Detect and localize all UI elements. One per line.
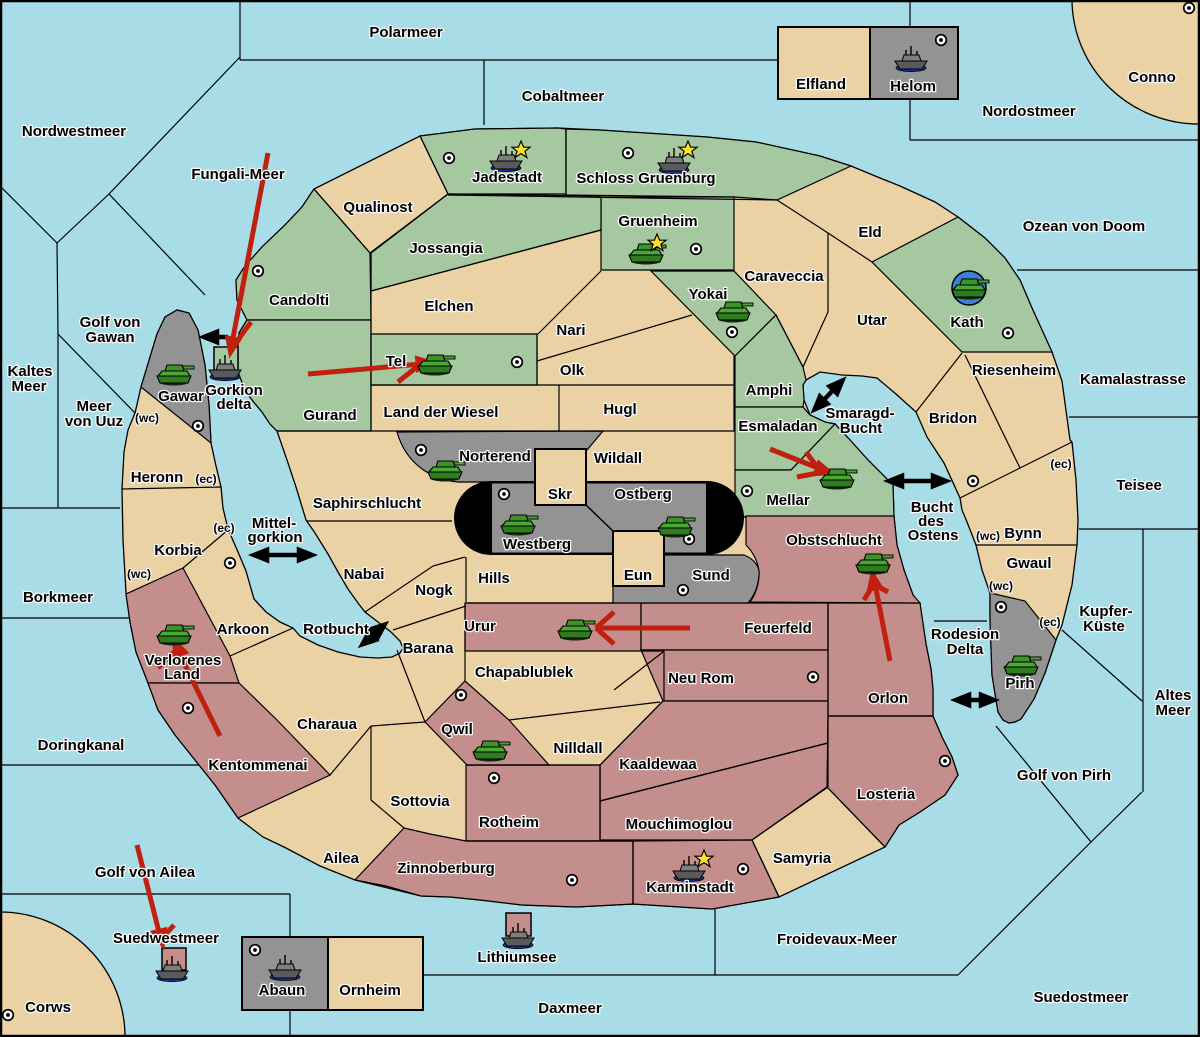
svg-text:Utar: Utar	[857, 312, 887, 329]
svg-text:Rotbucht: Rotbucht	[303, 621, 369, 638]
svg-text:Riesenheim: Riesenheim	[972, 362, 1056, 379]
svg-text:Ozean von Doom: Ozean von Doom	[1023, 218, 1146, 235]
svg-text:Abaun: Abaun	[259, 982, 306, 999]
svg-text:Elchen: Elchen	[424, 298, 473, 315]
svg-text:Sottovia: Sottovia	[390, 793, 450, 810]
svg-text:Qualinost: Qualinost	[343, 199, 412, 216]
svg-text:Rotheim: Rotheim	[479, 814, 539, 831]
svg-text:Fungali-Meer: Fungali-Meer	[191, 166, 285, 183]
svg-text:Nabai: Nabai	[344, 566, 385, 583]
svg-text:Kath: Kath	[950, 314, 983, 331]
svg-text:Delta: Delta	[947, 641, 984, 658]
svg-text:Kaaldewaa: Kaaldewaa	[619, 756, 697, 773]
svg-text:Charaua: Charaua	[297, 716, 358, 733]
svg-text:Ostens: Ostens	[908, 527, 959, 544]
svg-text:Skr: Skr	[548, 486, 572, 503]
svg-text:delta: delta	[216, 396, 252, 413]
svg-text:Mellar: Mellar	[766, 492, 810, 509]
svg-text:Chapablublek: Chapablublek	[475, 664, 574, 681]
svg-text:von Uuz: von Uuz	[65, 413, 123, 430]
svg-text:Tel: Tel	[386, 353, 407, 370]
svg-text:Qwil: Qwil	[441, 721, 473, 738]
svg-text:Lithiumsee: Lithiumsee	[477, 949, 556, 966]
svg-text:Samyria: Samyria	[773, 850, 832, 867]
svg-text:Esmaladan: Esmaladan	[738, 418, 817, 435]
svg-text:Nari: Nari	[556, 322, 585, 339]
svg-text:Nordwestmeer: Nordwestmeer	[22, 123, 126, 140]
svg-text:Küste: Küste	[1083, 618, 1125, 635]
svg-text:(wc): (wc)	[135, 411, 159, 425]
svg-text:(ec): (ec)	[1050, 457, 1071, 471]
svg-text:Karminstadt: Karminstadt	[646, 879, 734, 896]
svg-text:Jossangia: Jossangia	[409, 240, 483, 257]
svg-text:Eld: Eld	[858, 224, 881, 241]
svg-text:Zinnoberburg: Zinnoberburg	[397, 860, 495, 877]
svg-text:Olk: Olk	[560, 362, 585, 379]
svg-text:Gawan: Gawan	[85, 329, 134, 346]
svg-text:Losteria: Losteria	[857, 786, 916, 803]
svg-text:Helom: Helom	[890, 78, 936, 95]
svg-text:Cobaltmeer: Cobaltmeer	[522, 88, 605, 105]
svg-text:Polarmeer: Polarmeer	[369, 24, 443, 41]
svg-text:Nordostmeer: Nordostmeer	[982, 103, 1076, 120]
svg-text:Conno: Conno	[1128, 69, 1175, 86]
svg-text:Bucht: Bucht	[840, 420, 883, 437]
svg-text:Kentommenai: Kentommenai	[208, 757, 307, 774]
svg-text:Barana: Barana	[403, 640, 455, 657]
svg-text:Doringkanal: Doringkanal	[38, 737, 125, 754]
svg-text:Bridon: Bridon	[929, 410, 977, 427]
svg-text:Heronn: Heronn	[131, 469, 184, 486]
svg-text:Hugl: Hugl	[603, 401, 636, 418]
svg-text:Bynn: Bynn	[1004, 525, 1042, 542]
svg-text:Nilldall: Nilldall	[553, 740, 602, 757]
svg-text:Gruenheim: Gruenheim	[618, 213, 697, 230]
svg-text:Neu Rom: Neu Rom	[668, 670, 734, 687]
svg-text:Corws: Corws	[25, 999, 71, 1016]
svg-text:Kamalastrasse: Kamalastrasse	[1080, 371, 1186, 388]
svg-text:gorkion: gorkion	[248, 529, 303, 546]
svg-text:Feuerfeld: Feuerfeld	[744, 620, 812, 637]
svg-text:(ec): (ec)	[195, 472, 216, 486]
svg-text:Jadestadt: Jadestadt	[472, 169, 542, 186]
svg-text:Candolti: Candolti	[269, 292, 329, 309]
svg-text:(wc): (wc)	[127, 567, 151, 581]
svg-text:Suedwestmeer: Suedwestmeer	[113, 930, 219, 947]
svg-text:Korbia: Korbia	[154, 542, 202, 559]
svg-text:Ornheim: Ornheim	[339, 982, 401, 999]
svg-text:(ec): (ec)	[213, 521, 234, 535]
svg-text:Saphirschlucht: Saphirschlucht	[313, 495, 421, 512]
svg-text:Froidevaux-Meer: Froidevaux-Meer	[777, 931, 897, 948]
svg-text:Gurand: Gurand	[303, 407, 356, 424]
svg-text:Wildall: Wildall	[594, 450, 642, 467]
svg-text:Yokai: Yokai	[689, 286, 728, 303]
svg-text:Meer: Meer	[11, 378, 46, 395]
svg-text:Ostberg: Ostberg	[614, 486, 672, 503]
svg-text:(wc): (wc)	[976, 529, 1000, 543]
svg-text:Land: Land	[164, 666, 200, 683]
svg-text:Gwaul: Gwaul	[1006, 555, 1051, 572]
svg-text:Daxmeer: Daxmeer	[538, 1000, 602, 1017]
svg-text:Urur: Urur	[464, 618, 496, 635]
svg-text:Mouchimoglou: Mouchimoglou	[626, 816, 733, 833]
svg-text:Caraveccia: Caraveccia	[744, 268, 824, 285]
svg-text:Golf von Ailea: Golf von Ailea	[95, 864, 196, 881]
svg-text:Suedostmeer: Suedostmeer	[1033, 989, 1128, 1006]
svg-text:Gawar: Gawar	[158, 388, 204, 405]
svg-text:Norterend: Norterend	[459, 448, 531, 465]
svg-text:Ailea: Ailea	[323, 850, 360, 867]
svg-text:Arkoon: Arkoon	[217, 621, 270, 638]
svg-text:Golf von Pirh: Golf von Pirh	[1017, 767, 1111, 784]
svg-text:Borkmeer: Borkmeer	[23, 589, 93, 606]
svg-text:Land der Wiesel: Land der Wiesel	[384, 404, 499, 421]
svg-text:Pirh: Pirh	[1005, 675, 1034, 692]
svg-text:Nogk: Nogk	[415, 582, 453, 599]
svg-text:Elfland: Elfland	[796, 76, 846, 93]
svg-text:Schloss Gruenburg: Schloss Gruenburg	[576, 170, 715, 187]
svg-text:Teisee: Teisee	[1116, 477, 1162, 494]
svg-text:Sund: Sund	[692, 567, 730, 584]
svg-text:(ec): (ec)	[1039, 615, 1060, 629]
svg-text:Eun: Eun	[624, 567, 652, 584]
svg-text:Orlon: Orlon	[868, 690, 908, 707]
svg-text:Hills: Hills	[478, 570, 510, 587]
svg-text:Meer: Meer	[1155, 702, 1190, 719]
svg-text:(wc): (wc)	[989, 579, 1013, 593]
svg-text:Amphi: Amphi	[746, 382, 793, 399]
svg-text:Obstschlucht: Obstschlucht	[786, 532, 882, 549]
svg-text:Westberg: Westberg	[503, 536, 571, 553]
